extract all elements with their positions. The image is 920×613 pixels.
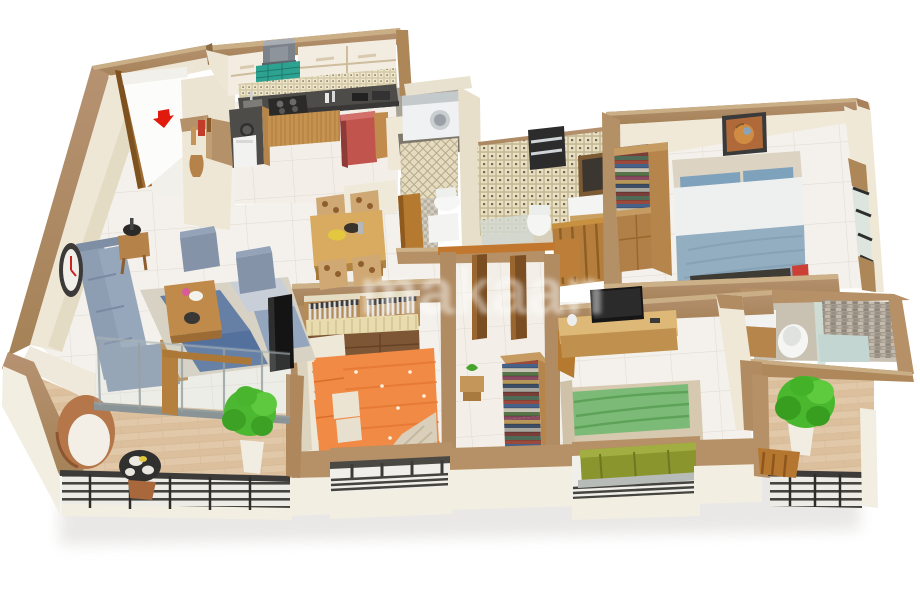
svg-text:makaan: makaan: [359, 254, 605, 328]
